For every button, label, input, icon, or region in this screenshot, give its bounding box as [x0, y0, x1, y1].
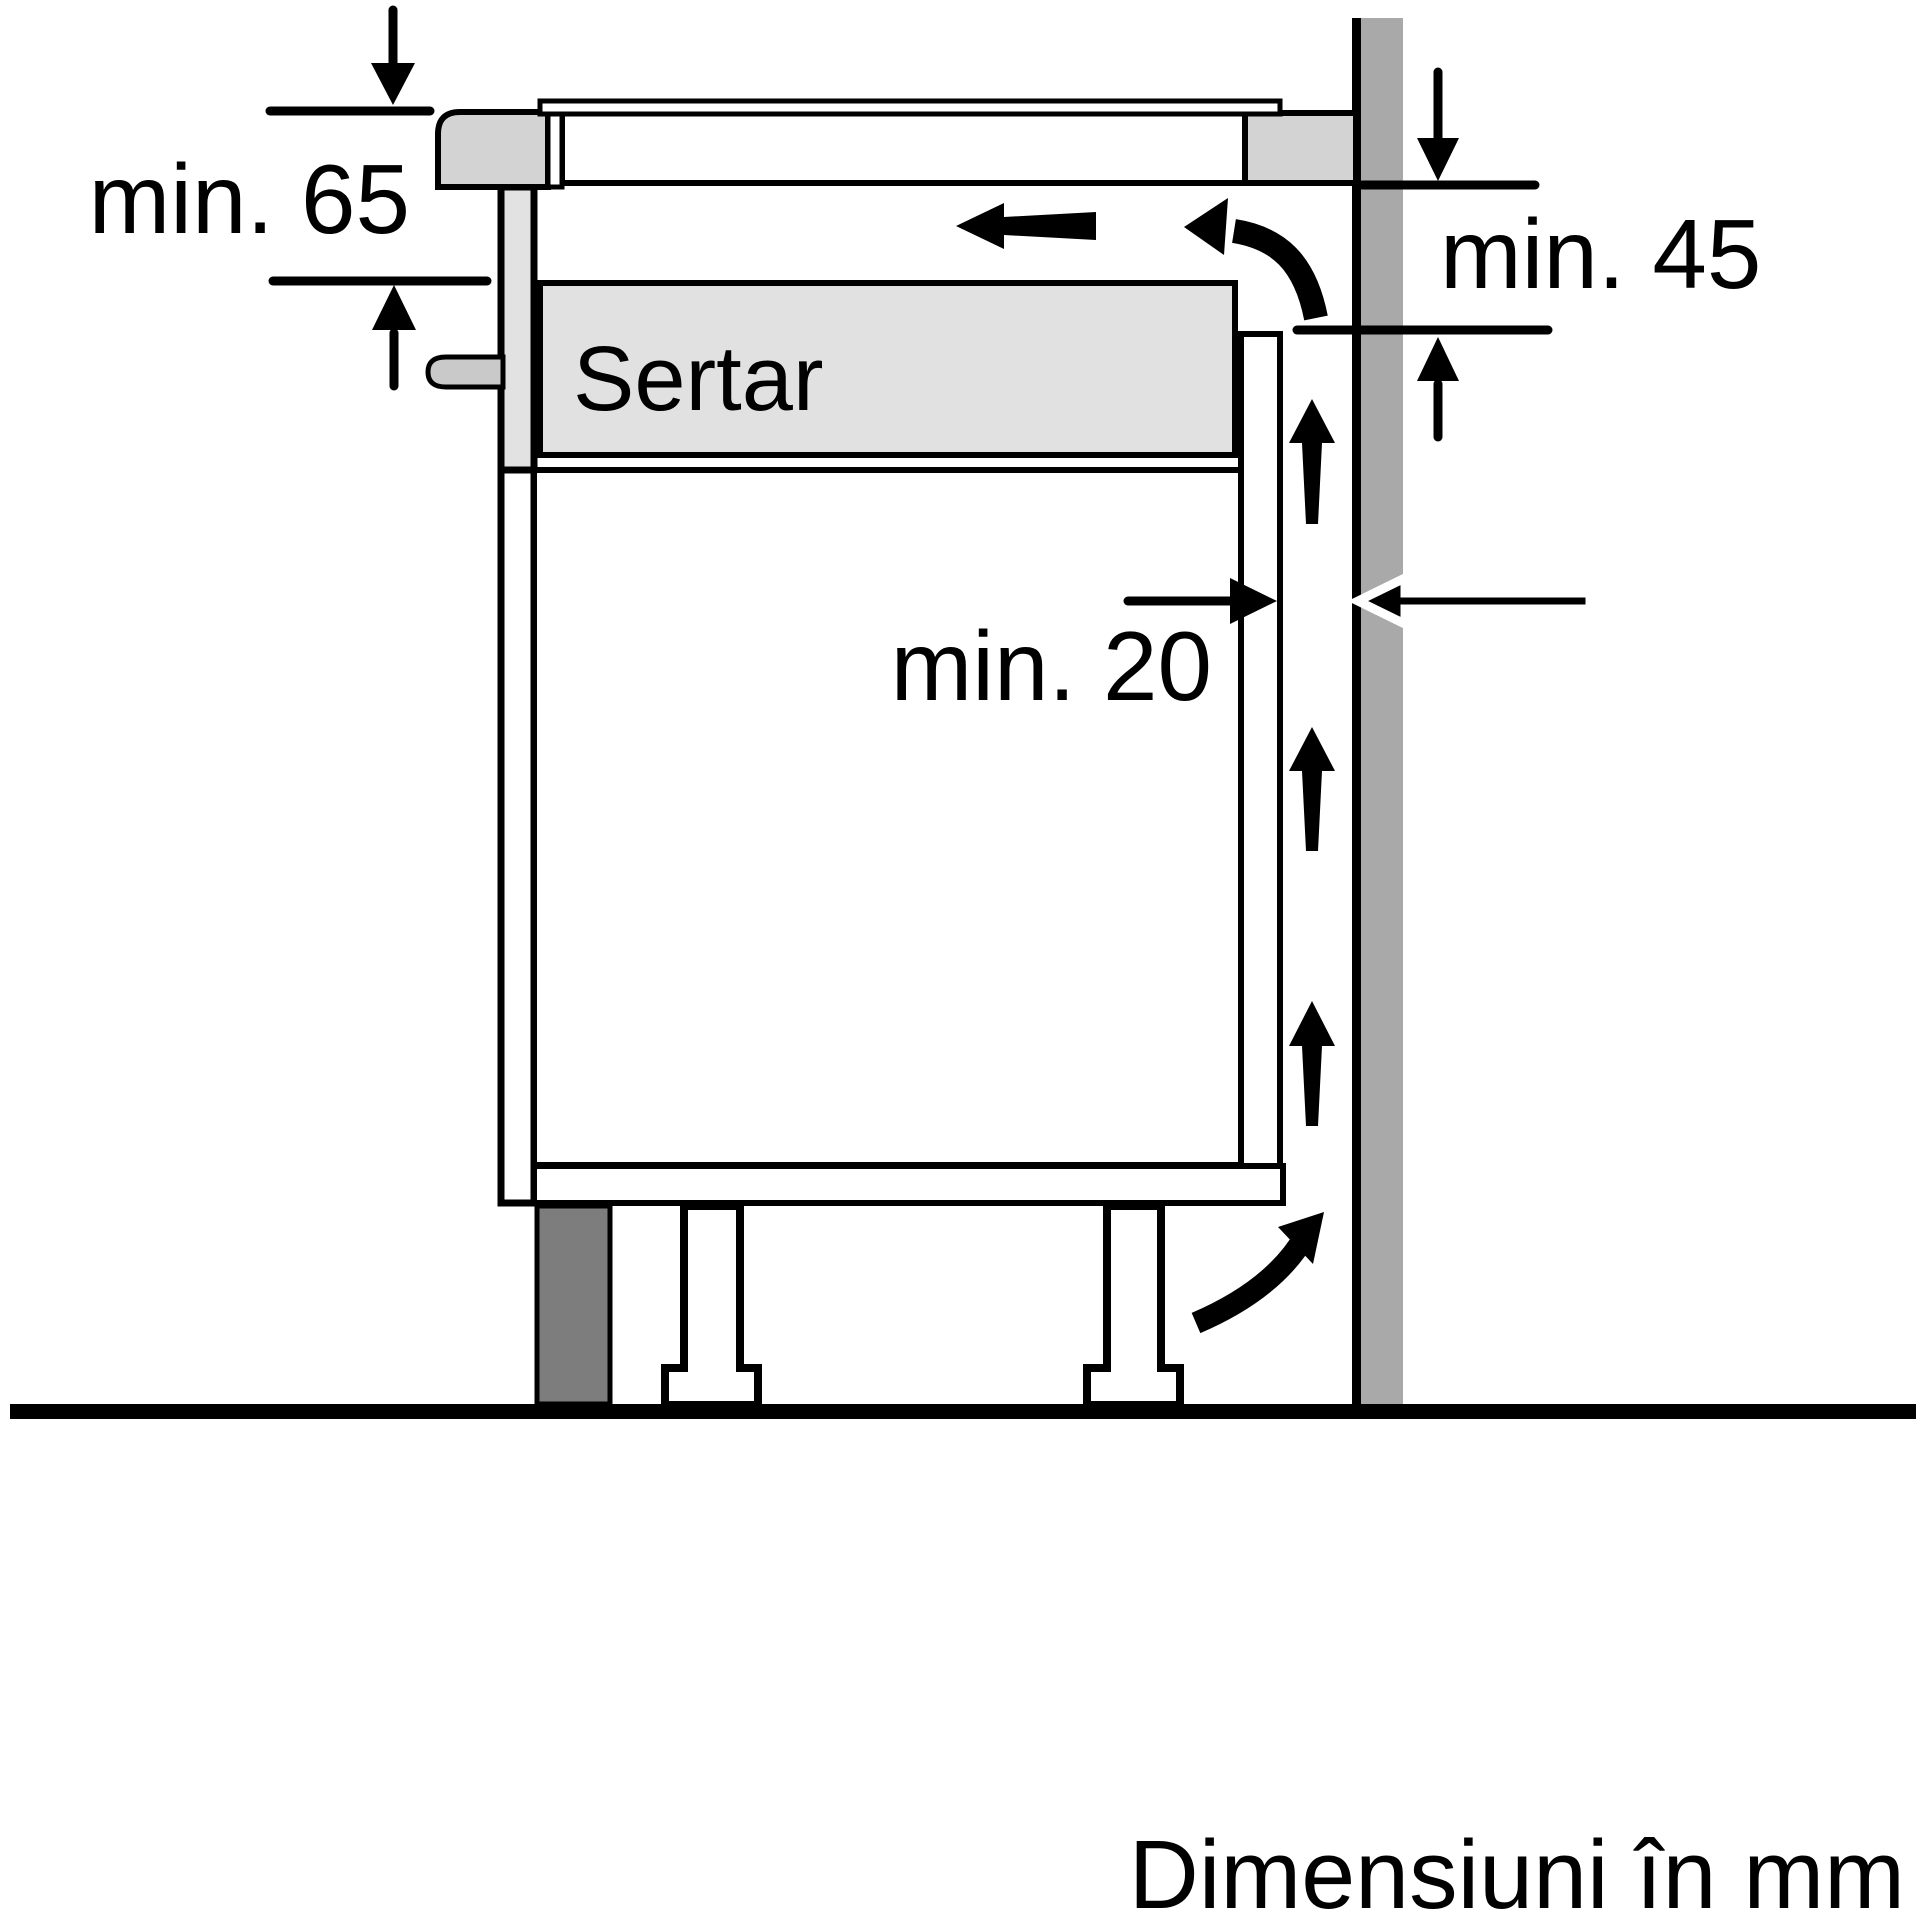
airflow-up-arrow-2 — [1289, 727, 1335, 851]
up-arrow-icon — [1289, 1001, 1335, 1046]
cabinet-leg-front — [665, 1206, 758, 1405]
up-arrow-shaft — [1302, 443, 1322, 524]
cabinet-leg-rear — [1087, 1206, 1180, 1405]
hob-left-block — [438, 112, 548, 187]
up-arrow-icon — [372, 285, 416, 330]
hob-right-block — [1245, 113, 1356, 183]
hob-glass — [540, 101, 1280, 114]
curved-arrow-head-icon — [1184, 198, 1228, 255]
drawer-label: Sertar — [573, 328, 824, 430]
airflow-curve-bottom — [1196, 1236, 1305, 1323]
airflow-up-arrow-1 — [1289, 399, 1335, 524]
floor-line — [10, 1404, 1916, 1419]
worktop — [562, 113, 1245, 183]
down-arrow-icon — [1417, 138, 1459, 181]
dimension-min65: min. 65 — [89, 10, 487, 386]
worktop-and-hob — [438, 101, 1356, 187]
up-arrow-shaft — [1302, 1046, 1322, 1126]
dim45-label: min. 45 — [1440, 199, 1761, 309]
wall — [1352, 18, 1403, 1408]
units-note: Dimensiuni în mm — [1129, 1820, 1905, 1920]
dim20-label: min. 20 — [891, 611, 1212, 721]
cabinet — [428, 187, 1283, 1405]
wall-face-line — [1352, 18, 1361, 1408]
left-arrow-icon — [1358, 578, 1590, 624]
airflow-up-arrow-3 — [1289, 1001, 1335, 1126]
airflow-left-arrow-icon — [956, 203, 1096, 249]
cabinet-rear-panel — [1241, 334, 1280, 1168]
up-arrow-icon — [1417, 337, 1459, 381]
cabinet-bottom-panel — [534, 1166, 1283, 1203]
hob-joint-line — [548, 112, 562, 187]
fixing-peg — [428, 357, 503, 387]
down-arrow-icon — [371, 63, 415, 105]
wall-body — [1360, 18, 1403, 1408]
cabinet-interior — [534, 470, 1241, 1165]
installation-diagram: min. 65 min. 45 min. 20 — [0, 0, 1920, 1920]
plinth-block — [537, 1206, 610, 1404]
cabinet-side-panel-upper — [501, 187, 534, 470]
airflow-curve-top — [1234, 231, 1316, 318]
up-arrow-shaft — [1302, 771, 1322, 851]
up-arrow-icon — [1289, 399, 1335, 443]
dim65-label: min. 65 — [89, 144, 410, 254]
diagram-svg: min. 65 min. 45 min. 20 — [0, 0, 1920, 1920]
up-arrow-icon — [1289, 727, 1335, 771]
